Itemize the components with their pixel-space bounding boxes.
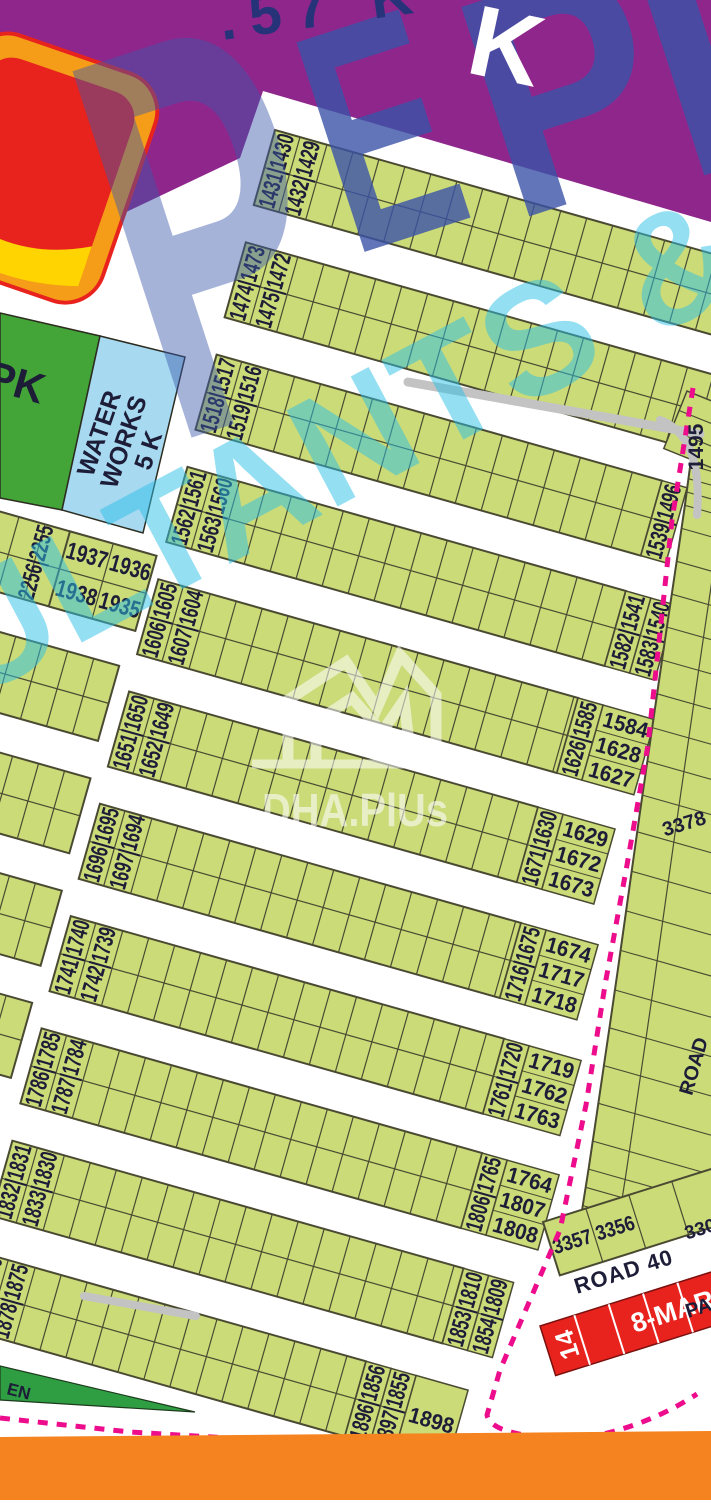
svg-text:DHA.PlUs: DHA.PlUs bbox=[262, 784, 448, 836]
svg-text:1495: 1495 bbox=[685, 423, 708, 470]
